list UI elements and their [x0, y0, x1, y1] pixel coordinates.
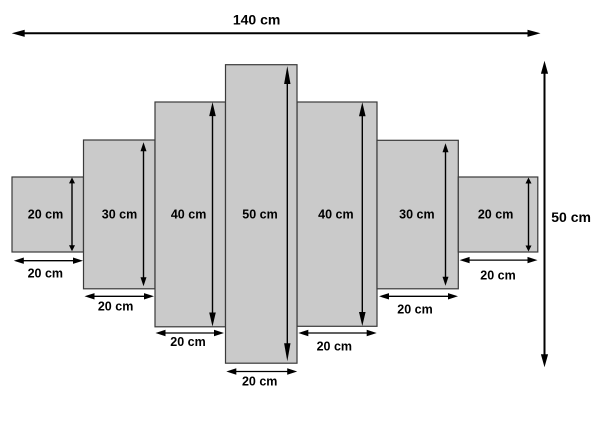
svg-text:50 cm: 50 cm: [551, 209, 591, 225]
svg-text:30 cm: 30 cm: [102, 208, 137, 222]
svg-text:20 cm: 20 cm: [242, 374, 277, 388]
svg-text:20 cm: 20 cm: [170, 335, 205, 349]
svg-text:20 cm: 20 cm: [98, 299, 133, 313]
svg-text:20 cm: 20 cm: [478, 208, 513, 222]
svg-text:20 cm: 20 cm: [28, 208, 63, 222]
svg-text:20 cm: 20 cm: [480, 268, 515, 282]
svg-text:50 cm: 50 cm: [242, 208, 277, 222]
svg-text:30 cm: 30 cm: [399, 208, 434, 222]
svg-text:40 cm: 40 cm: [171, 208, 206, 222]
svg-text:20 cm: 20 cm: [397, 303, 432, 317]
svg-text:40 cm: 40 cm: [318, 208, 353, 222]
svg-text:140 cm: 140 cm: [233, 12, 280, 28]
svg-text:20 cm: 20 cm: [28, 266, 63, 280]
svg-text:20 cm: 20 cm: [317, 340, 352, 354]
